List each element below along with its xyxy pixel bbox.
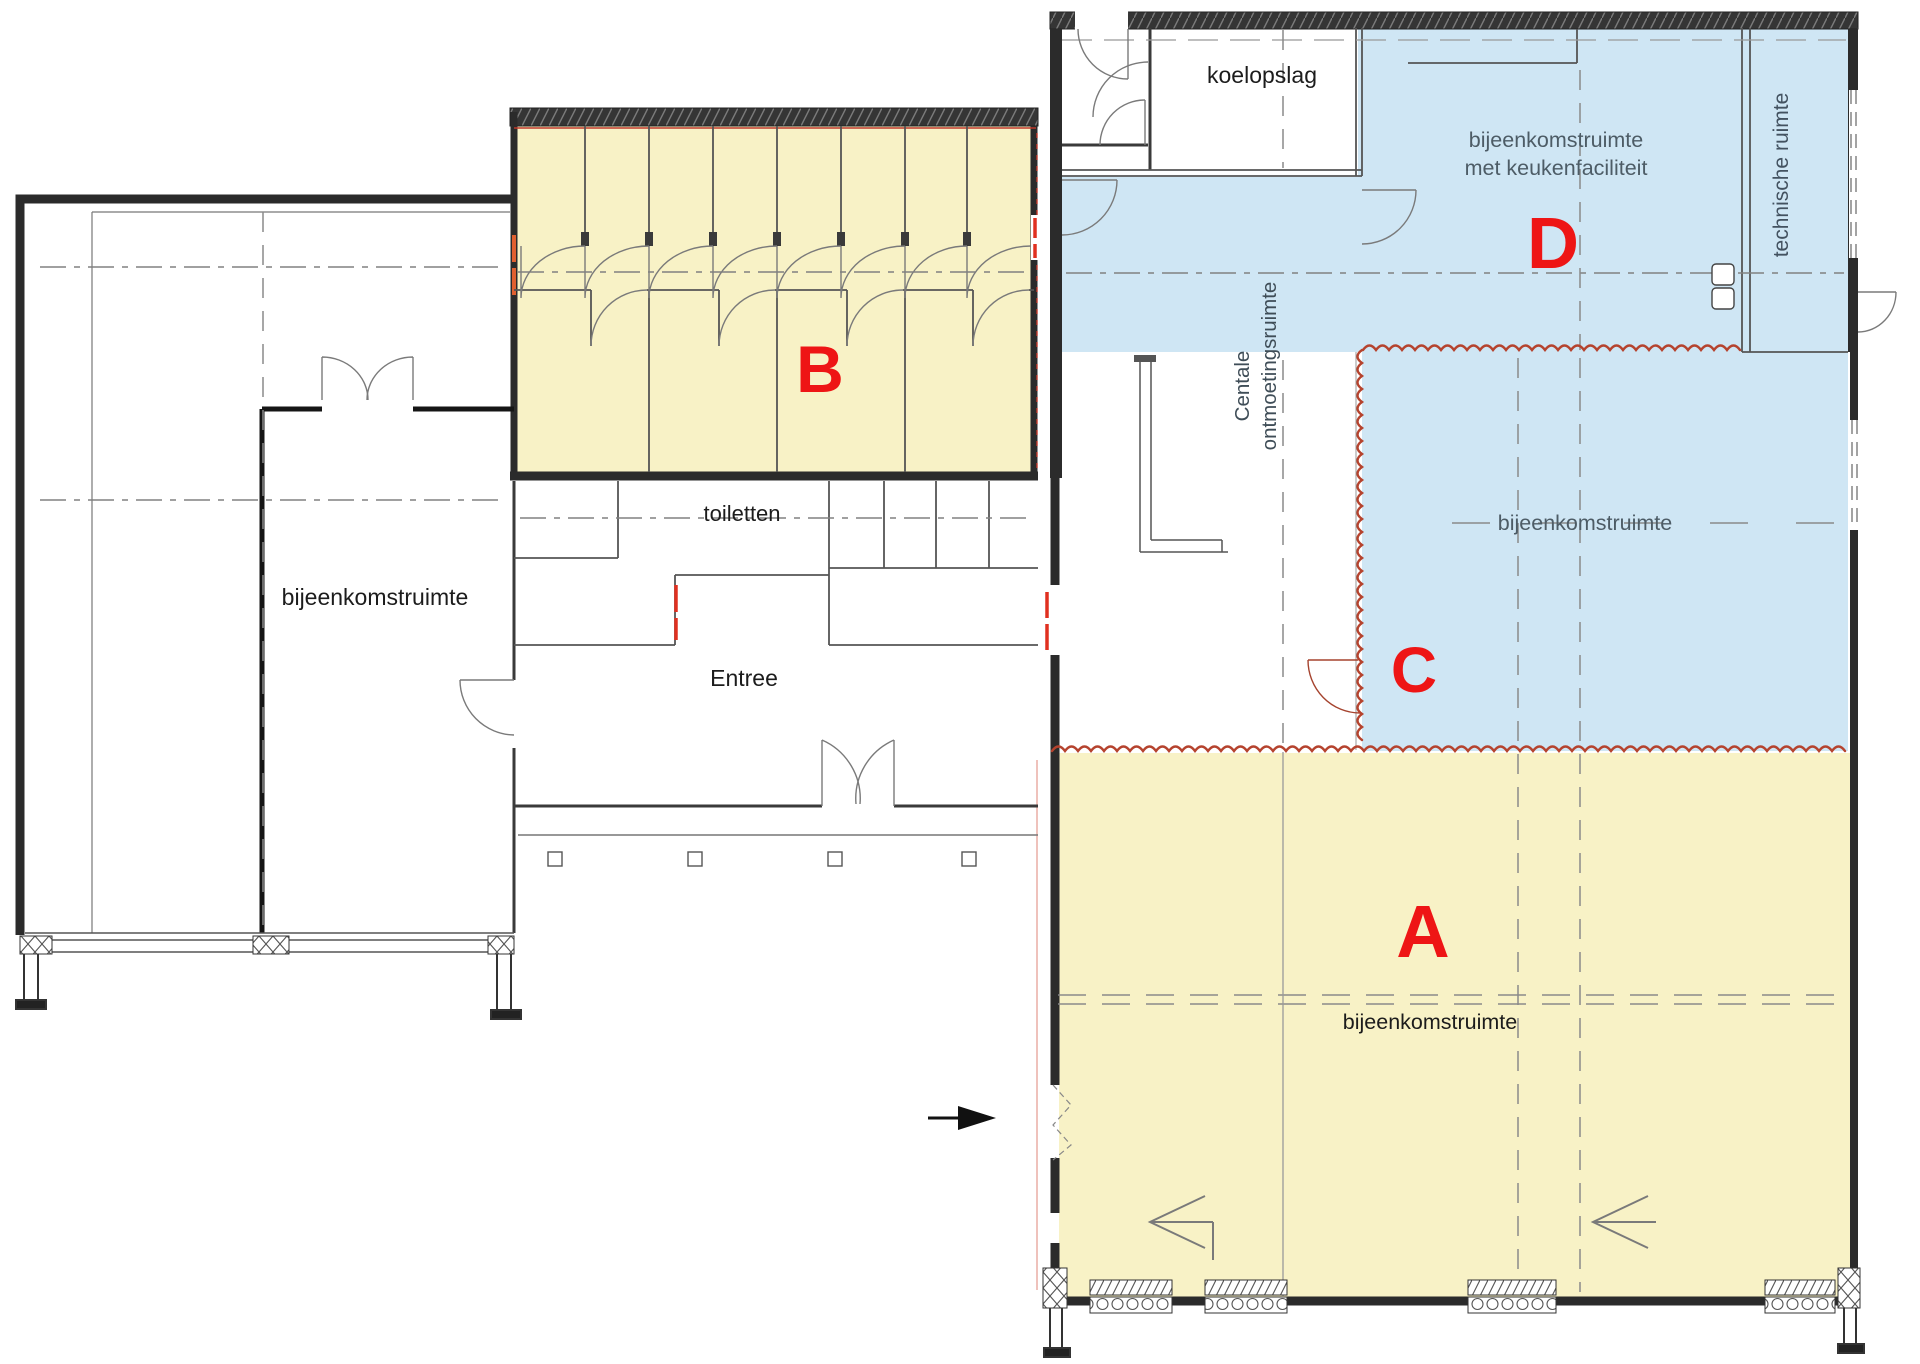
zone-c-room-label: bijeenkomstruimte (1498, 511, 1672, 535)
toiletten-label: toiletten (703, 501, 780, 526)
floor-plan: koelopslag bijeenkomstruimte met keukenf… (0, 0, 1920, 1364)
central-meeting-label-line2: ontmoetingsruimte (1258, 282, 1281, 451)
central-meeting-band-fill (1062, 177, 1358, 352)
central-meeting-label-line1: Centale (1231, 351, 1254, 422)
zone-d-room-label-line1: bijeenkomstruimte (1469, 128, 1643, 152)
porch-columns (548, 852, 976, 866)
entry-arrow (928, 1106, 996, 1130)
zone-d-letter: D (1527, 204, 1579, 284)
floor-plan-drawing: koelopslag bijeenkomstruimte met keukenf… (0, 0, 1920, 1364)
red-door-marks (676, 585, 1047, 650)
zone-a-room-label: bijeenkomstruimte (1343, 1010, 1517, 1034)
left-meeting-room-label: bijeenkomstruimte (282, 584, 469, 610)
zone-d-room-label-line2: met keukenfaciliteit (1465, 156, 1648, 180)
zone-b-letter: B (796, 332, 844, 406)
zone-fills (517, 28, 1850, 1298)
zone-c-letter: C (1391, 634, 1437, 706)
zone-c-door (1308, 660, 1360, 713)
zone-a-letter: A (1396, 890, 1449, 973)
zone-b-fill (517, 126, 1034, 472)
wavy-c-left-boundary (1358, 350, 1363, 740)
koelopslag-label: koelopslag (1207, 62, 1317, 88)
technische-ruimte-label: technische ruimte (1770, 93, 1793, 258)
entree-label: Entree (710, 665, 778, 691)
